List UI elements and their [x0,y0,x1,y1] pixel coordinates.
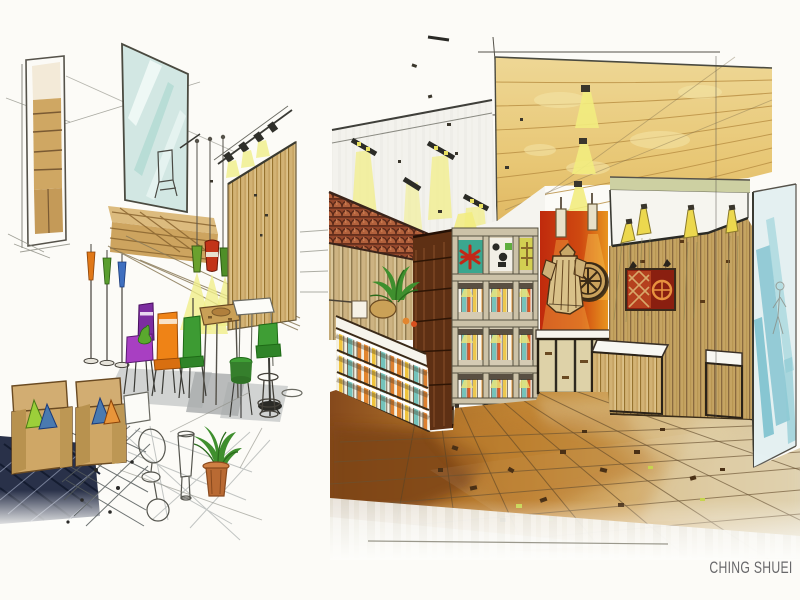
svg-text:CHING SHUEI: CHING SHUEI [709,559,792,577]
